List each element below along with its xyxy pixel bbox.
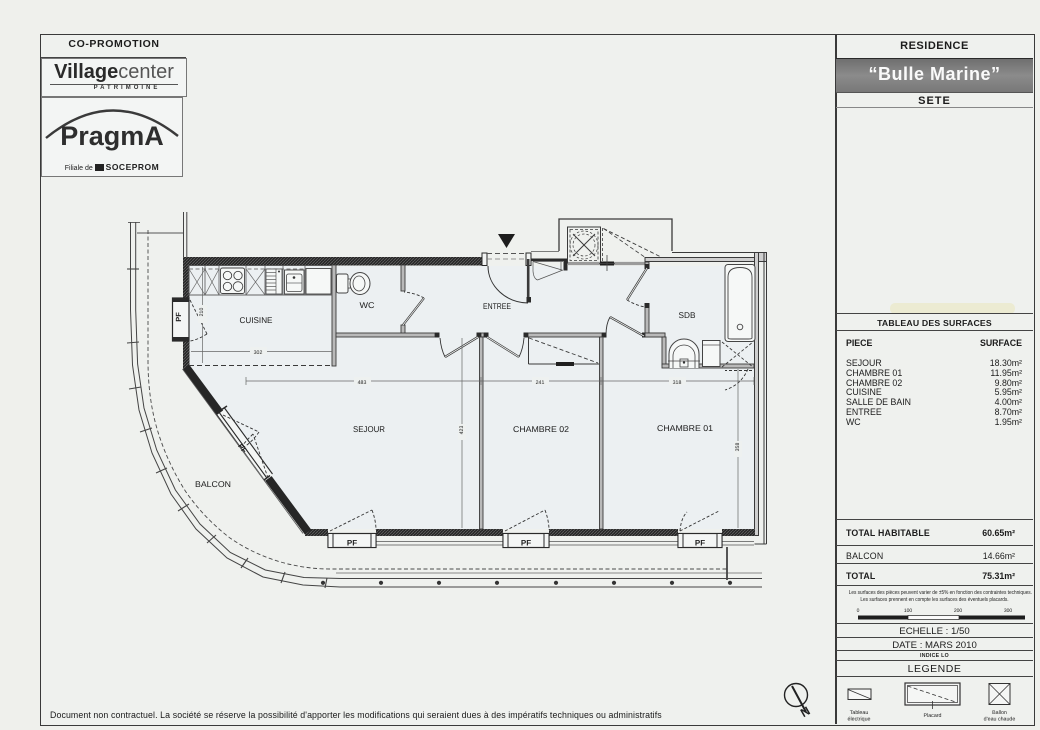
svg-text:PF: PF [695, 539, 705, 548]
svg-text:318: 318 [673, 380, 682, 386]
svg-text:SEJOUR: SEJOUR [353, 424, 385, 434]
svg-text:PF: PF [174, 312, 183, 322]
svg-text:CUISINE: CUISINE [240, 315, 273, 325]
svg-text:ENTREE: ENTREE [483, 301, 511, 311]
svg-text:210: 210 [199, 308, 205, 317]
svg-text:483: 483 [358, 380, 367, 386]
svg-text:SDB: SDB [679, 310, 696, 320]
svg-text:241: 241 [536, 380, 545, 386]
svg-text:302: 302 [254, 350, 263, 356]
svg-text:CHAMBRE 01: CHAMBRE 01 [657, 423, 713, 433]
svg-text:358: 358 [735, 443, 741, 452]
svg-text:WC: WC [360, 300, 375, 310]
svg-text:PF: PF [521, 539, 531, 548]
svg-text:PF: PF [347, 539, 357, 548]
svg-text:BALCON: BALCON [195, 479, 231, 489]
svg-text:CHAMBRE 02: CHAMBRE 02 [513, 424, 569, 434]
svg-text:423: 423 [459, 426, 465, 435]
